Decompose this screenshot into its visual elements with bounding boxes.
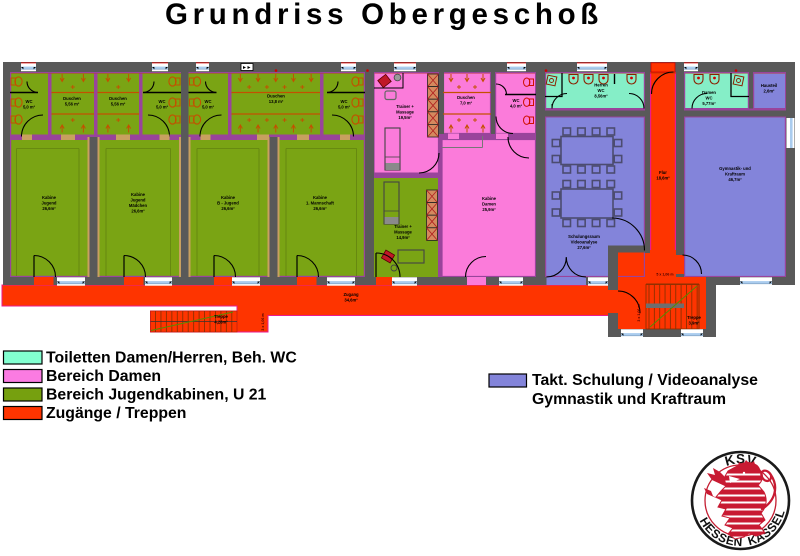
svg-text:Zugänge / Treppen: Zugänge / Treppen (46, 405, 186, 422)
svg-text:Kabine: Kabine (131, 192, 146, 197)
svg-text:Hausteil: Hausteil (761, 83, 777, 88)
svg-text:18,6m²: 18,6m² (656, 176, 670, 181)
svg-text:7,0 m²: 7,0 m² (460, 101, 473, 106)
svg-text:1. Mannschaft: 1. Mannschaft (306, 201, 335, 206)
svg-text:5 x 1,06 m: 5 x 1,06 m (656, 273, 673, 277)
svg-text:Grundriss Obergeschoß: Grundriss Obergeschoß (165, 0, 603, 31)
svg-text:B - Jugend: B - Jugend (217, 201, 239, 206)
svg-text:5,0 m²: 5,0 m² (23, 105, 36, 110)
svg-text:27,6m²: 27,6m² (577, 245, 591, 250)
svg-text:Duschen: Duschen (267, 94, 285, 99)
svg-text:Duschen: Duschen (63, 96, 81, 101)
svg-text:Bereich Jugendkabinen, U 21: Bereich Jugendkabinen, U 21 (46, 387, 267, 404)
svg-text:WC: WC (598, 88, 605, 93)
svg-text:Massage: Massage (394, 230, 412, 235)
svg-text:WC: WC (341, 99, 348, 104)
svg-text:Damen: Damen (702, 90, 716, 95)
svg-text:WC: WC (706, 96, 713, 101)
svg-text:26,6m²: 26,6m² (131, 209, 145, 214)
svg-text:Zugang: Zugang (343, 292, 359, 297)
svg-text:Bereich Damen: Bereich Damen (46, 368, 161, 385)
svg-text:34,6m²: 34,6m² (344, 298, 358, 303)
svg-text:Videoanalyse: Videoanalyse (571, 240, 598, 245)
svg-text:5,0 m²: 5,0 m² (338, 105, 351, 110)
svg-text:26,6m²: 26,6m² (42, 206, 56, 211)
svg-text:2,6m²: 2,6m² (764, 89, 776, 94)
svg-text:25,9m²: 25,9m² (482, 207, 496, 212)
svg-text:Gymnastik und Kraftraum: Gymnastik und Kraftraum (532, 391, 726, 408)
svg-text:3,9m²: 3,9m² (689, 321, 701, 326)
svg-text:Kabine: Kabine (42, 195, 57, 200)
svg-text:13,8 m²: 13,8 m² (269, 99, 284, 104)
svg-text:Trainer +: Trainer + (396, 104, 414, 109)
svg-text:4,0 m²: 4,0 m² (510, 104, 523, 109)
svg-text:14,9m²: 14,9m² (396, 235, 410, 240)
svg-text:19,5m²: 19,5m² (398, 115, 412, 120)
svg-text:26,6m²: 26,6m² (313, 206, 327, 211)
svg-text:Mädchen: Mädchen (129, 203, 148, 208)
svg-text:Jugend: Jugend (131, 198, 146, 203)
svg-text:4,28m²: 4,28m² (214, 320, 228, 325)
svg-text:5,56 m²: 5,56 m² (65, 102, 80, 107)
svg-text:Kraftraum: Kraftraum (725, 172, 745, 177)
svg-text:WC: WC (26, 99, 33, 104)
svg-text:Schulungsraum: Schulungsraum (568, 234, 600, 239)
svg-text:WC: WC (513, 98, 520, 103)
svg-text:Jugend: Jugend (42, 201, 57, 206)
svg-text:Duschen: Duschen (457, 95, 475, 100)
svg-text:Kabine: Kabine (221, 195, 236, 200)
svg-text:8,56m²: 8,56m² (594, 94, 608, 99)
svg-text:Duschen: Duschen (109, 96, 127, 101)
svg-text:Toiletten Damen/Herren, Beh. W: Toiletten Damen/Herren, Beh. WC (46, 350, 297, 367)
svg-text:Trainer +: Trainer + (394, 224, 412, 229)
svg-text:5,0 m²: 5,0 m² (202, 105, 215, 110)
svg-text:WC: WC (159, 99, 166, 104)
svg-text:5,77m²: 5,77m² (702, 101, 716, 106)
svg-text:Gymnastik- und: Gymnastik- und (719, 166, 751, 171)
svg-text:Treppe: Treppe (214, 314, 228, 319)
svg-text:3 x 1,06 m: 3 x 1,06 m (637, 304, 641, 321)
svg-text:Damen: Damen (482, 202, 496, 207)
svg-text:Takt. Schulung / Videoanalyse: Takt. Schulung / Videoanalyse (532, 372, 758, 389)
svg-text:Kabine: Kabine (313, 195, 328, 200)
svg-text:5,0 m²: 5,0 m² (156, 105, 169, 110)
svg-text:Massage: Massage (396, 110, 414, 115)
svg-text:Treppe: Treppe (687, 315, 701, 320)
svg-text:Flur: Flur (659, 170, 667, 175)
svg-text:26,6m²: 26,6m² (221, 206, 235, 211)
svg-text:46,7m²: 46,7m² (728, 177, 742, 182)
svg-text:Herren: Herren (594, 83, 608, 88)
svg-text:5,56 m²: 5,56 m² (111, 102, 126, 107)
svg-text:WC: WC (205, 99, 212, 104)
svg-text:3 x 1,06 m: 3 x 1,06 m (261, 313, 265, 330)
svg-text:Kabine: Kabine (482, 196, 497, 201)
